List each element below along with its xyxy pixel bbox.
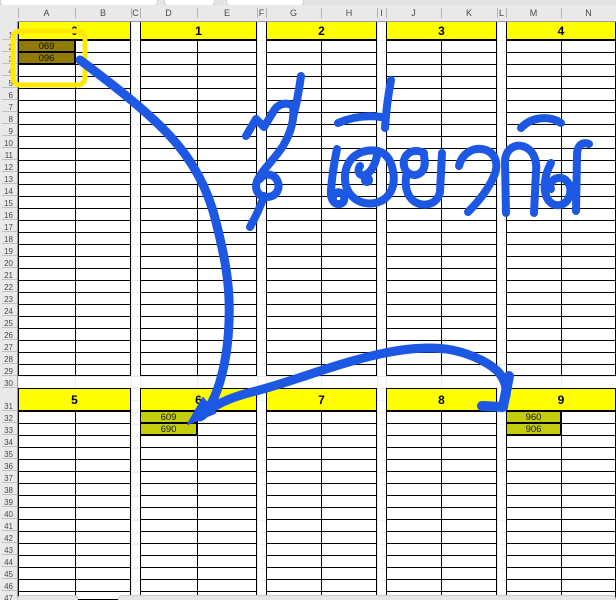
section-row-divider	[386, 423, 497, 424]
section-row-divider	[18, 160, 131, 161]
col-header-N[interactable]: N	[561, 5, 616, 21]
group-band-top-4[interactable]: 4	[506, 21, 616, 40]
section-row-divider	[140, 100, 257, 101]
section-row-divider	[18, 292, 131, 293]
section-row-divider	[266, 316, 377, 317]
col-header-H[interactable]: H	[321, 5, 377, 21]
section-row-divider	[140, 208, 257, 209]
col-tick	[266, 8, 267, 18]
row-header-31[interactable]: 31	[0, 388, 15, 411]
section-row-divider	[386, 352, 497, 353]
section-row-divider	[506, 244, 616, 245]
section-row-divider	[140, 232, 257, 233]
section-row-divider	[18, 447, 131, 448]
section-row-divider	[506, 495, 616, 496]
section-row-divider	[386, 483, 497, 484]
section-row-divider	[140, 328, 257, 329]
section-row-divider	[386, 435, 497, 436]
col-tick	[257, 8, 258, 18]
section-row-divider	[18, 555, 131, 556]
section-row-divider	[18, 280, 131, 281]
section-row-divider	[18, 184, 131, 185]
section-row-divider	[140, 507, 257, 508]
section-row-divider	[506, 435, 616, 436]
section-row-divider	[140, 495, 257, 496]
col-header-K[interactable]: K	[441, 5, 497, 21]
col-header-I[interactable]: I	[377, 5, 386, 21]
section-row-divider	[506, 328, 616, 329]
section-row-divider	[506, 148, 616, 149]
section-row-divider	[18, 136, 131, 137]
cell-D32[interactable]: 609	[140, 411, 197, 423]
section-row-divider	[140, 160, 257, 161]
section-row-divider	[140, 531, 257, 532]
section-row-divider	[386, 292, 497, 293]
section-row-divider	[386, 52, 497, 53]
section-row-divider	[266, 447, 377, 448]
section-row-divider	[266, 555, 377, 556]
section-row-divider	[140, 52, 257, 53]
section-row-divider	[18, 543, 131, 544]
section-row-divider	[140, 340, 257, 341]
section-row-divider	[18, 232, 131, 233]
column-header-strip[interactable]: ABCDEFGHIJKLMN	[0, 5, 616, 22]
section-row-divider	[266, 579, 377, 580]
section-row-divider	[18, 507, 131, 508]
group-band-bottom-6[interactable]: 6	[140, 388, 257, 411]
section-row-divider	[386, 184, 497, 185]
section-row-divider	[506, 220, 616, 221]
section-row-divider	[18, 328, 131, 329]
section-row-divider	[140, 76, 257, 77]
section-row-divider	[18, 172, 131, 173]
section-row-divider	[140, 64, 257, 65]
section-row-divider	[18, 316, 131, 317]
section-row-divider	[18, 196, 131, 197]
section-row-divider	[18, 268, 131, 269]
section-row-divider	[386, 567, 497, 568]
section-row-divider	[266, 52, 377, 53]
section-column-divider	[197, 411, 198, 600]
section-row-divider	[386, 364, 497, 365]
section-row-divider	[506, 567, 616, 568]
section-column-divider	[75, 411, 76, 600]
section-row-divider	[18, 256, 131, 257]
section-row-divider	[18, 208, 131, 209]
section-row-divider	[386, 268, 497, 269]
col-header-L[interactable]: L	[497, 5, 506, 21]
section-row-divider	[506, 483, 616, 484]
section-row-divider	[266, 507, 377, 508]
section-row-divider	[18, 244, 131, 245]
section-column-divider	[441, 411, 442, 600]
section-row-divider	[18, 220, 131, 221]
section-row-divider	[266, 567, 377, 568]
section-row-divider	[266, 435, 377, 436]
section-row-divider	[18, 495, 131, 496]
section-row-divider	[266, 184, 377, 185]
col-tick	[75, 8, 76, 18]
section-row-divider	[386, 543, 497, 544]
col-header-D[interactable]: D	[140, 5, 197, 21]
section-row-divider	[506, 112, 616, 113]
section-row-divider	[386, 256, 497, 257]
section-row-divider	[386, 136, 497, 137]
cell-D33[interactable]: 690	[140, 423, 197, 435]
section-row-divider	[266, 340, 377, 341]
section-row-divider	[140, 88, 257, 89]
spreadsheet-canvas: ABCDEFGHIJKLMN 1234567891011121314151617…	[0, 0, 616, 600]
section-row-divider	[386, 579, 497, 580]
section-row-divider	[506, 364, 616, 365]
col-header-B[interactable]: B	[75, 5, 131, 21]
col-header-G[interactable]: G	[266, 5, 321, 21]
col-header-E[interactable]: E	[197, 5, 257, 21]
section-row-divider	[266, 519, 377, 520]
section-row-divider	[140, 148, 257, 149]
section-row-divider	[506, 196, 616, 197]
section-row-divider	[140, 136, 257, 137]
col-header-J[interactable]: J	[386, 5, 441, 21]
section-row-divider	[140, 459, 257, 460]
section-row-divider	[386, 591, 497, 592]
section-row-divider	[506, 184, 616, 185]
section-row-divider	[266, 543, 377, 544]
table-section-bottom-1[interactable]	[140, 411, 257, 600]
group-band-top-3[interactable]: 3	[386, 21, 497, 40]
col-header-F[interactable]: F	[257, 5, 266, 21]
section-row-divider	[386, 244, 497, 245]
section-row-divider	[266, 124, 377, 125]
sheet-tab-edge	[17, 595, 78, 600]
col-tick	[131, 8, 132, 18]
col-tick	[497, 8, 498, 18]
section-row-divider	[506, 208, 616, 209]
section-row-divider	[266, 244, 377, 245]
section-row-divider	[506, 232, 616, 233]
cell-A3[interactable]: 096	[18, 52, 75, 64]
section-row-divider	[386, 459, 497, 460]
section-row-divider	[506, 519, 616, 520]
section-row-divider	[18, 364, 131, 365]
section-row-divider	[506, 352, 616, 353]
status-bar-edge	[118, 595, 616, 600]
section-row-divider	[266, 280, 377, 281]
group-band-top-1[interactable]: 1	[140, 21, 257, 40]
section-row-divider	[18, 459, 131, 460]
section-row-divider	[386, 220, 497, 221]
col-tick	[506, 8, 507, 18]
section-row-divider	[506, 316, 616, 317]
section-row-divider	[18, 76, 131, 77]
section-row-divider	[18, 352, 131, 353]
section-row-divider	[266, 88, 377, 89]
section-row-divider	[506, 64, 616, 65]
section-row-divider	[506, 88, 616, 89]
section-row-divider	[266, 531, 377, 532]
section-row-divider	[506, 280, 616, 281]
section-row-divider	[266, 483, 377, 484]
faint-gridline-v	[257, 21, 258, 595]
section-row-divider	[140, 244, 257, 245]
row-header-1[interactable]: 1	[0, 21, 15, 40]
section-row-divider	[386, 100, 497, 101]
section-row-divider	[386, 124, 497, 125]
section-row-divider	[386, 112, 497, 113]
section-row-divider	[266, 172, 377, 173]
section-row-divider	[386, 328, 497, 329]
section-row-divider	[140, 352, 257, 353]
section-row-divider	[266, 423, 377, 424]
col-tick	[18, 8, 19, 18]
section-row-divider	[140, 280, 257, 281]
section-row-divider	[140, 268, 257, 269]
section-row-divider	[18, 112, 131, 113]
group-band-top-0[interactable]: 0	[18, 21, 131, 40]
section-row-divider	[506, 124, 616, 125]
col-header-M[interactable]: M	[506, 5, 561, 21]
section-row-divider	[506, 459, 616, 460]
col-tick	[561, 8, 562, 18]
section-row-divider	[506, 531, 616, 532]
section-row-divider	[386, 208, 497, 209]
section-row-divider	[140, 591, 257, 592]
col-tick	[321, 8, 322, 18]
section-row-divider	[386, 340, 497, 341]
row-header-gutter[interactable]: 1234567891011121314151617181920212223242…	[0, 21, 18, 600]
section-row-divider	[18, 88, 131, 89]
section-row-divider	[266, 64, 377, 65]
section-row-divider	[266, 352, 377, 353]
section-row-divider	[18, 591, 131, 592]
section-row-divider	[140, 519, 257, 520]
section-row-divider	[506, 471, 616, 472]
section-row-divider	[140, 304, 257, 305]
section-row-divider	[386, 196, 497, 197]
section-row-divider	[18, 519, 131, 520]
section-row-divider	[386, 447, 497, 448]
section-row-divider	[140, 567, 257, 568]
section-row-divider	[386, 316, 497, 317]
section-row-divider	[266, 136, 377, 137]
section-row-divider	[140, 447, 257, 448]
section-row-divider	[266, 100, 377, 101]
section-row-divider	[18, 124, 131, 125]
section-row-divider	[266, 459, 377, 460]
section-row-divider	[386, 495, 497, 496]
section-row-divider	[386, 471, 497, 472]
section-row-divider	[386, 160, 497, 161]
section-row-divider	[386, 76, 497, 77]
section-row-divider	[506, 76, 616, 77]
section-row-divider	[266, 591, 377, 592]
group-band-bottom-8[interactable]: 8	[386, 388, 497, 411]
col-tick	[377, 8, 378, 18]
section-column-divider	[561, 411, 562, 600]
section-row-divider	[266, 328, 377, 329]
section-row-divider	[506, 256, 616, 257]
section-row-divider	[266, 232, 377, 233]
section-row-divider	[140, 124, 257, 125]
section-row-divider	[266, 495, 377, 496]
section-row-divider	[18, 531, 131, 532]
section-row-divider	[140, 316, 257, 317]
section-row-divider	[18, 471, 131, 472]
section-row-divider	[266, 268, 377, 269]
faint-gridline-v	[377, 21, 378, 595]
section-row-divider	[266, 292, 377, 293]
section-row-divider	[140, 184, 257, 185]
section-row-divider	[266, 160, 377, 161]
bottom-ui-edge	[0, 595, 616, 600]
section-row-divider	[506, 100, 616, 101]
section-row-divider	[140, 435, 257, 436]
section-row-divider	[506, 136, 616, 137]
section-row-divider	[18, 579, 131, 580]
col-header-C[interactable]: C	[131, 5, 140, 21]
section-row-divider	[386, 507, 497, 508]
section-row-divider	[506, 555, 616, 556]
col-tick	[197, 8, 198, 18]
col-tick	[386, 8, 387, 18]
section-row-divider	[18, 423, 131, 424]
section-row-divider	[506, 172, 616, 173]
faint-gridline-v	[131, 21, 132, 595]
section-row-divider	[386, 64, 497, 65]
section-row-divider	[266, 364, 377, 365]
section-row-divider	[506, 304, 616, 305]
section-row-divider	[386, 172, 497, 173]
section-row-divider	[506, 268, 616, 269]
section-row-divider	[386, 280, 497, 281]
cell-A2[interactable]: 069	[18, 40, 75, 52]
section-row-divider	[386, 531, 497, 532]
section-row-divider	[266, 112, 377, 113]
section-row-divider	[506, 292, 616, 293]
section-row-divider	[18, 304, 131, 305]
section-row-divider	[386, 555, 497, 556]
section-row-divider	[386, 519, 497, 520]
section-row-divider	[506, 543, 616, 544]
section-row-divider	[506, 591, 616, 592]
section-row-divider	[140, 292, 257, 293]
section-row-divider	[506, 447, 616, 448]
section-row-divider	[506, 160, 616, 161]
section-row-divider	[18, 148, 131, 149]
col-tick	[441, 8, 442, 18]
group-band-bottom-9[interactable]: 9	[506, 388, 616, 411]
section-row-divider	[266, 471, 377, 472]
cell-M32[interactable]: 960	[506, 411, 561, 423]
section-row-divider	[18, 483, 131, 484]
section-row-divider	[386, 148, 497, 149]
section-row-divider	[140, 555, 257, 556]
section-row-divider	[266, 304, 377, 305]
section-row-divider	[18, 435, 131, 436]
section-row-divider	[18, 340, 131, 341]
section-row-divider	[266, 76, 377, 77]
section-row-divider	[506, 579, 616, 580]
section-row-divider	[140, 220, 257, 221]
section-row-divider	[140, 579, 257, 580]
section-row-divider	[386, 232, 497, 233]
section-row-divider	[140, 483, 257, 484]
section-row-divider	[18, 567, 131, 568]
section-row-divider	[140, 196, 257, 197]
section-row-divider	[140, 364, 257, 365]
section-row-divider	[18, 64, 131, 65]
col-header-A[interactable]: A	[18, 5, 75, 21]
section-row-divider	[140, 172, 257, 173]
section-row-divider	[386, 88, 497, 89]
section-row-divider	[266, 148, 377, 149]
faint-gridline-v	[497, 21, 498, 595]
section-row-divider	[506, 340, 616, 341]
section-row-divider	[506, 507, 616, 508]
section-row-divider	[140, 471, 257, 472]
group-band-top-2[interactable]: 2	[266, 21, 377, 40]
group-band-bottom-5[interactable]: 5	[18, 388, 131, 411]
section-column-divider	[321, 411, 322, 600]
section-row-divider	[386, 304, 497, 305]
group-band-bottom-7[interactable]: 7	[266, 388, 377, 411]
col-tick	[140, 8, 141, 18]
section-row-divider	[266, 196, 377, 197]
section-row-divider	[140, 543, 257, 544]
cell-M33[interactable]: 906	[506, 423, 561, 435]
section-row-divider	[140, 256, 257, 257]
faint-gridline-h	[18, 376, 616, 377]
section-row-divider	[140, 112, 257, 113]
section-row-divider	[18, 100, 131, 101]
section-row-divider	[266, 256, 377, 257]
section-row-divider	[266, 208, 377, 209]
section-row-divider	[266, 220, 377, 221]
section-row-divider	[506, 52, 616, 53]
